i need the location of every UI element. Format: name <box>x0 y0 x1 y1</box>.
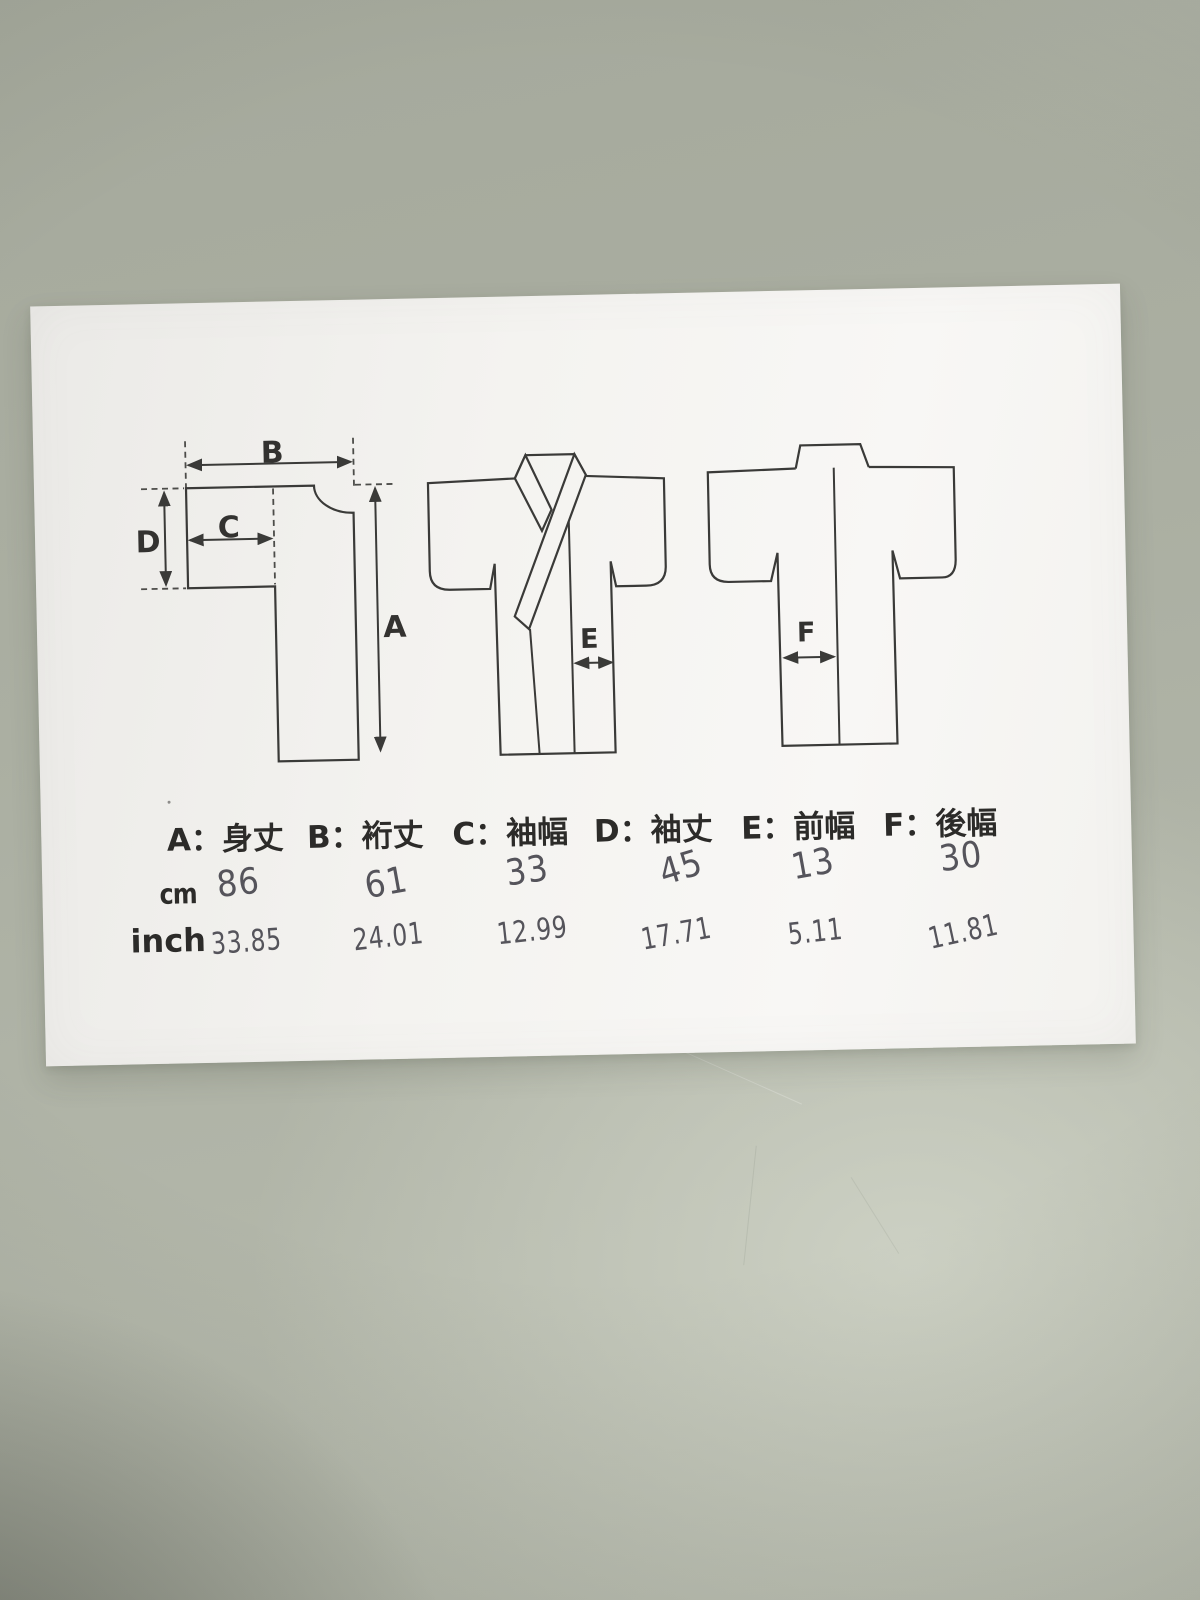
guide-line <box>355 484 394 485</box>
photo-kimono-size-chart: { "colors": { "table_surface": "#aeb2a5"… <box>0 0 1200 1600</box>
guide-line <box>141 588 186 589</box>
label-f: F <box>797 617 816 648</box>
inch-value-d: 17.71 <box>638 911 714 958</box>
guide-line <box>141 488 184 489</box>
legend-item-c: C：袖幅 <box>452 806 569 853</box>
paper-speck <box>168 801 171 804</box>
legend-item-f: F：後幅 <box>883 797 998 844</box>
measurement-diagrams: B D C A E F <box>135 401 1012 769</box>
legend-item-e: E：前幅 <box>741 800 856 847</box>
unit-label-inch: inch <box>130 921 206 961</box>
arrow-d <box>164 493 166 585</box>
label-d: D <box>135 525 161 561</box>
inch-value-a: 33.85 <box>210 922 283 962</box>
front-view-diagram: E <box>427 452 669 756</box>
back-view-diagram: F <box>707 442 959 747</box>
guide-line <box>185 441 186 490</box>
legend-item-a: A：身丈 <box>166 812 284 859</box>
inch-value-f: 11.81 <box>925 907 1002 956</box>
table-scratch <box>851 1177 900 1254</box>
guide-line <box>353 438 354 487</box>
table-scratch <box>743 1146 757 1265</box>
label-a: A <box>383 610 408 645</box>
label-b: B <box>260 435 284 470</box>
inch-value-e: 5.11 <box>786 912 845 953</box>
cm-value-c: 33 <box>503 848 551 895</box>
front-overlap-seam <box>530 629 540 754</box>
cm-value-e: 13 <box>788 840 838 888</box>
cm-value-d: 45 <box>654 842 707 894</box>
collar-left-band <box>514 455 552 532</box>
flat-diagram: B D C A <box>135 433 411 765</box>
cm-value-f: 30 <box>937 834 985 880</box>
arrow-a <box>375 488 380 750</box>
center-back-seam <box>834 468 840 745</box>
inch-value-b: 24.01 <box>351 916 425 958</box>
cm-value-b: 61 <box>362 859 412 907</box>
inch-value-c: 12.99 <box>495 910 569 952</box>
arrow-f <box>785 657 834 658</box>
flat-garment-outline <box>186 485 359 763</box>
paper-sheet: B D C A E F A：身丈 B：裄丈 C：袖幅 D：袖丈 E：前幅 <box>30 284 1136 1067</box>
unit-label-cm: cm <box>159 877 197 911</box>
label-c: C <box>217 510 240 545</box>
legend-item-b: B：裄丈 <box>306 809 424 856</box>
back-collar <box>795 444 868 469</box>
front-panel-seam <box>569 521 575 753</box>
cm-value-a: 86 <box>215 861 262 906</box>
guide-line <box>273 488 275 584</box>
label-e: E <box>580 624 599 655</box>
arrow-e <box>576 662 612 663</box>
